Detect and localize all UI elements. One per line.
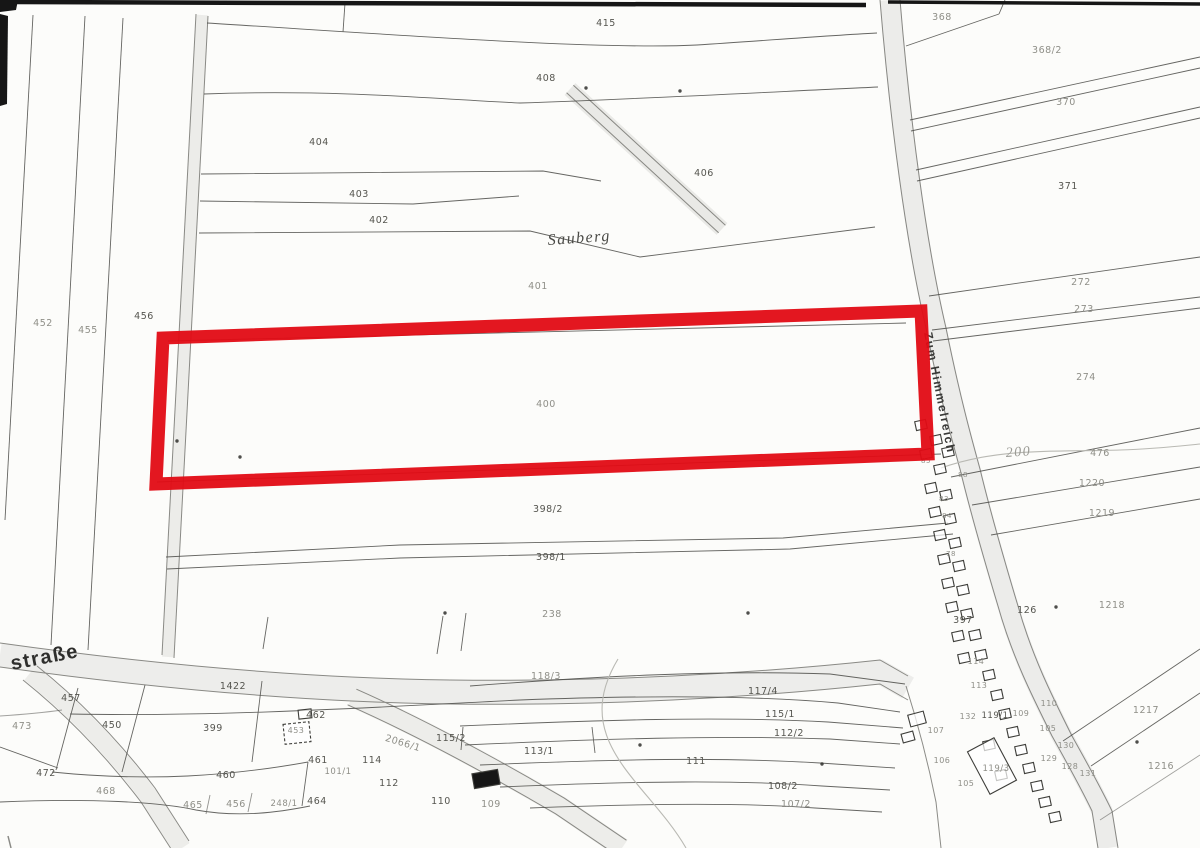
parcel-label: 109 — [481, 799, 501, 810]
parcel-label: 101/1 — [325, 767, 352, 777]
parcel-label: 117/4 — [748, 686, 778, 697]
parcel-label: 371 — [1058, 181, 1078, 192]
building-footprint — [991, 689, 1004, 700]
parcel-label: 460 — [216, 770, 236, 781]
building-footprint — [946, 601, 959, 612]
building-footprint — [957, 584, 970, 595]
building-footprint — [1031, 780, 1044, 791]
parcel-label: 107 — [928, 726, 945, 735]
parcel-label: 1219 — [1089, 508, 1115, 519]
parcel-label: 473 — [12, 721, 32, 732]
parcel-label: 398/1 — [536, 552, 566, 563]
parcel-label: 119/1 — [982, 711, 1009, 721]
parcel-label: 452 — [33, 318, 53, 329]
parcel-label: 109 — [1013, 709, 1030, 718]
scan-edge-top-right — [888, 2, 1200, 4]
parcel-label: 83 — [939, 495, 949, 503]
parcel-label: 238 — [542, 609, 562, 620]
parcel-label: 403 — [349, 189, 369, 200]
parcel-label: 450 — [102, 720, 122, 731]
parcel-label: 105 — [1040, 724, 1057, 733]
building-footprint — [1049, 811, 1062, 822]
parcel-label: 1216 — [1148, 761, 1174, 772]
parcel-label: 106 — [934, 756, 951, 765]
cadastral-map: 415408404406403402401456452455400368368/… — [0, 0, 1200, 848]
parcel-label: 404 — [309, 137, 329, 148]
parcel-label: 1218 — [1099, 600, 1125, 611]
parcel-label: 131 — [1080, 769, 1097, 778]
boundary-dot — [638, 743, 641, 746]
parcel-label: 105 — [958, 779, 975, 788]
building-footprint — [953, 560, 966, 571]
parcel-label: 1217 — [1133, 705, 1159, 716]
parcel-label: 78 — [946, 550, 956, 558]
building-footprint — [1023, 762, 1036, 773]
building-footprint — [901, 731, 915, 743]
parcel-label: 130 — [1058, 741, 1075, 750]
parcel-label: 115/2 — [436, 733, 466, 744]
parcel-label: 399 — [203, 723, 223, 734]
parcel-label: 1220 — [1079, 478, 1105, 489]
parcel-label: 273 — [1074, 304, 1094, 315]
boundary-stone-dots — [175, 86, 1138, 765]
scan-blob-corner — [0, 0, 18, 12]
parcel-label: 113 — [971, 681, 988, 690]
parcel-label: 457 — [61, 693, 81, 704]
parcel-label: 114 — [362, 755, 382, 766]
parcel-label: 111 — [686, 756, 706, 767]
parcel-label: 461 — [308, 755, 328, 766]
parcel-label: 456 — [134, 311, 154, 322]
building-footprint — [925, 482, 938, 493]
parcel-label: 132 — [960, 712, 977, 721]
boundary-dot — [820, 762, 823, 765]
parcel-label: 462 — [306, 710, 326, 721]
parcel-label: 464 — [307, 796, 327, 807]
building-footprint — [1015, 744, 1028, 755]
parcel-label: 88 — [958, 471, 968, 479]
parcel-label: 465 — [183, 800, 203, 811]
highlight-rectangle — [156, 311, 928, 484]
street-label: 200 — [1005, 444, 1031, 461]
scanned-map-page: 415408404406403402401456452455400368368/… — [0, 0, 1200, 848]
parcel-label: 455 — [78, 325, 98, 336]
building-footprint — [934, 463, 947, 474]
parcel-label: 368/2 — [1032, 45, 1062, 56]
sauberg-track-band — [570, 89, 722, 229]
boundary-dot — [1054, 605, 1057, 608]
building-footprint — [942, 577, 955, 588]
parcel-label: 84 — [942, 512, 952, 520]
boundary-dot — [746, 611, 749, 614]
contour-lines — [602, 444, 1200, 848]
parcel-label: 113/1 — [524, 746, 554, 757]
building-footprint-filled — [472, 769, 500, 788]
boundary-dot — [443, 611, 446, 614]
parcel-label: 274 — [1076, 372, 1096, 383]
parcel-label: 456 — [226, 799, 246, 810]
parcel-label: 114 — [968, 657, 985, 666]
street-label: Sauberg — [547, 228, 611, 249]
parcel-label: 408 — [536, 73, 556, 84]
parcel-label: 415 — [596, 18, 616, 29]
parcel-label: 401 — [528, 281, 548, 292]
parcel-label: 453 — [288, 726, 305, 735]
parcel-label: 129 — [1041, 754, 1058, 763]
building-footprint — [929, 506, 942, 517]
boundary-dot — [1135, 740, 1138, 743]
parcel-label: 476 — [1090, 448, 1110, 459]
parcel-label: 126 — [1017, 605, 1037, 616]
building-footprint — [952, 630, 965, 641]
building-footprint — [969, 629, 982, 640]
parcel-label: 368 — [932, 12, 952, 23]
parcel-label: 472 — [36, 768, 56, 779]
parcel-label: 370 — [1056, 97, 1076, 108]
building-footprint — [1007, 726, 1020, 737]
parcel-label: 112 — [379, 778, 399, 789]
building-footprint — [983, 669, 996, 680]
boundary-dot — [584, 86, 587, 89]
scan-bar-left — [0, 14, 8, 106]
building-footprint — [908, 711, 927, 727]
building-footprint — [934, 529, 947, 540]
building-footprint — [1039, 796, 1052, 807]
scan-edge-top-left — [16, 2, 866, 5]
parcel-label: 110 — [431, 796, 451, 807]
boundary-dot — [678, 89, 681, 92]
parcel-label: 128 — [1062, 762, 1079, 771]
parcel-label: 468 — [96, 786, 116, 797]
fork-road-band — [30, 673, 182, 848]
parcel-label: 119/3 — [983, 764, 1010, 774]
boundary-dot — [175, 439, 178, 442]
parcel-label: 115/1 — [765, 709, 795, 720]
parcel-label: 400 — [536, 399, 556, 410]
parcel-label: 110 — [1041, 699, 1058, 708]
parcel-label: 272 — [1071, 277, 1091, 288]
parcel-label: 398/2 — [533, 504, 563, 515]
parcel-label: 118/3 — [531, 671, 561, 682]
parcel-label: 108/2 — [768, 781, 798, 792]
building-footprint — [949, 537, 962, 548]
parcel-label: 397 — [953, 615, 973, 626]
parcel-label: 1422 — [220, 681, 246, 692]
parcel-label: 248/1 — [271, 799, 298, 809]
scan-mark-bottom-left — [8, 836, 11, 848]
parcel-label: 402 — [369, 215, 389, 226]
boundary-dot — [238, 455, 241, 458]
parcel-label: 107/2 — [781, 799, 811, 810]
parcel-label: 406 — [694, 168, 714, 179]
parcel-label: 112/2 — [774, 728, 804, 739]
